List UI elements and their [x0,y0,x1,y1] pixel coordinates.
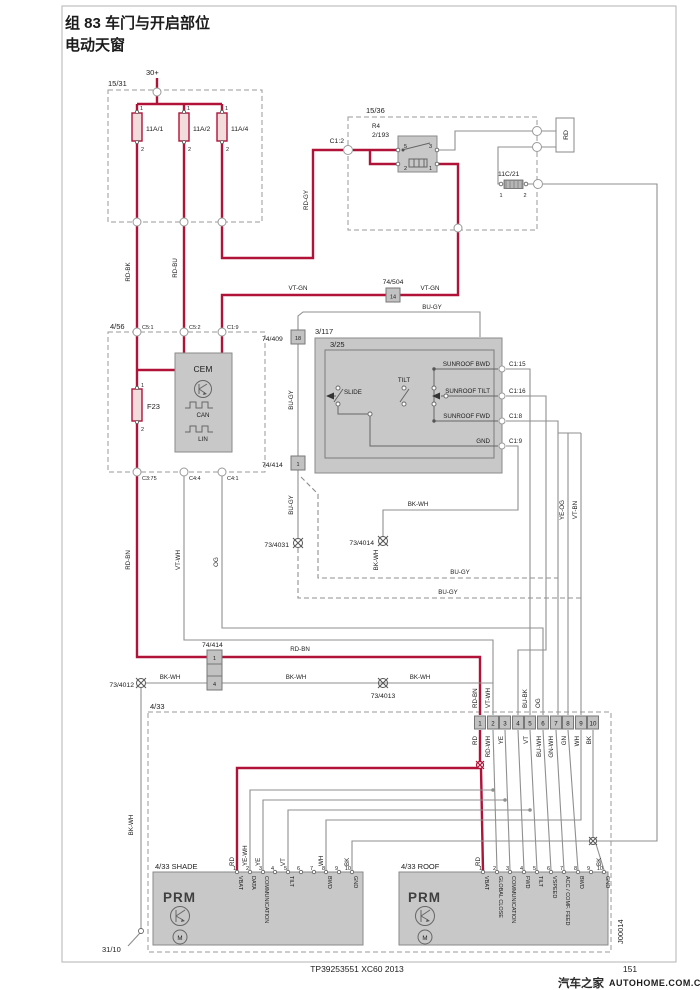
wire-label: YE [498,736,505,744]
wire-label: BU-GY [288,390,295,410]
signal-wires-gray [128,131,657,946]
ground-31-10-label: 31/10 [102,945,121,954]
wire-label: OG [535,698,542,708]
relay-2-193 [396,136,439,172]
wire-label: BU-GY [438,589,458,596]
box-15-31-label: 15/31 [108,79,127,88]
wiring-diagram-page: 组 83 车门与开启部位 电动天窗 30+ 15/31 11A/1 11A/2 … [0,0,700,990]
box-3-117-label: 3/117 [315,327,333,336]
pin-num: 2 [141,147,144,153]
relay-id: 2/193 [372,132,389,139]
conn-74-504-label: 74/504 [383,279,404,286]
pin-num: 7 [554,721,558,728]
conn-74-414-label: 74/414 [262,462,283,469]
ground-label: 73/4014 [349,540,374,547]
conn-label: C1:16 [509,388,526,395]
wire-label: VT [280,858,287,866]
shade-label: 4/33 SHADE [155,862,198,871]
pin-num: 3 [506,866,509,872]
pin-num: 10 [590,721,597,728]
wire-label: RD [472,735,479,744]
shade-prm: PRM [163,890,196,905]
part-number: TP39253551 XC60 2013 [310,964,404,974]
page-title: 组 83 车门与开启部位 [65,14,210,32]
fuse-label: 11A/4 [231,126,248,133]
page-number: 151 [623,964,637,974]
conn-label: C1:9 [509,438,523,445]
pin-num: 2 [188,147,191,153]
pin-num: 3 [503,721,507,728]
wire-label: BK-WH [410,674,431,681]
pin-num: 8 [574,866,577,872]
wire-label: RD-BU [172,258,179,278]
pin-num: 7 [560,866,563,872]
wire-label: YE-OG [559,500,566,520]
wire-label: VT [523,736,530,744]
sunroof-switch-3-117 [315,338,502,473]
wire-label: VT-GN [421,285,440,292]
conn-74-409-label: 74/409 [262,336,283,343]
conn-c1-2: C1:2 [330,138,345,145]
wire-label: RD-BN [125,550,132,570]
wire-label: RD-WH [485,736,492,757]
ground-label: 73/4013 [371,693,396,700]
pin-num: 8 [322,866,325,872]
pin-func: TILT [288,876,294,888]
wire-label: BK-WH [286,674,307,681]
pin-num: 6 [297,866,300,872]
pin-num: 1 [187,106,190,112]
sw-row-label: GND [476,438,490,445]
roof-label: 4/33 ROOF [401,862,440,871]
slide-label: SLIDE [344,389,362,396]
cem-name: CEM [194,364,213,374]
pin-func: BWD [578,876,584,889]
pin-func: FWD [524,876,530,889]
wire-label: BK-WH [160,674,181,681]
conn-label: C1:15 [509,361,526,368]
pin-num: 10 [597,866,603,872]
box-4-56-label: 4/56 [110,322,125,331]
wire-label: BK [586,735,593,744]
bus-can-label: CAN [196,412,209,419]
pin-num: 1 [225,106,228,112]
pin-num: 6 [547,866,550,872]
pin-num: 1 [499,193,502,199]
pin-num: 1 [213,656,216,662]
watermark-cn: 汽车之家 [558,976,604,990]
pin-num: 4 [271,866,274,872]
pin-num: 6 [541,721,545,728]
wire-label: BU-GY [450,569,470,576]
conn-label: C1:9 [227,325,239,331]
wire-label: VT-BN [572,501,579,519]
roof-prm: PRM [408,890,441,905]
fuse-label: 11A/2 [193,126,210,133]
wire-label: BU-GY [288,495,295,515]
wire-label: YE-WH [242,845,249,866]
unit-3-25-label: 3/25 [330,340,345,349]
pin-func: TILT [537,876,543,888]
wire-label: YE [255,858,262,866]
wire-label: BU-BK [522,688,529,708]
pin-func: GND [352,876,358,888]
conn-label: C1:8 [509,413,523,420]
relay-name: R4 [372,123,380,130]
pin-num: 18 [295,336,301,342]
pin-num: 3 [259,866,262,872]
pin-num: 9 [587,866,590,872]
motor-icon: M [177,935,182,942]
drawing-code: J00014 [616,919,625,944]
tilt-label: TILT [398,377,410,384]
pin-num: 4 [213,682,216,688]
wire-label: RD-BN [290,646,310,653]
pin-num: 9 [335,866,338,872]
pin-func: VBAT [237,876,243,891]
dashed-wires [298,477,581,598]
pin-num: 7 [310,866,313,872]
wire-label: BU-GY [422,304,442,311]
splice-rd [476,761,484,769]
sw-row-label: SUNROOF FWD [443,413,490,420]
pin-num: 8 [566,721,570,728]
pin-num: 1 [478,721,482,728]
conn-label: C4:4 [189,476,201,482]
pin-num: 2 [226,147,229,153]
pin-num: 2 [404,166,407,172]
wire-label: BK-WH [408,501,429,508]
pin-func: ACC / COMF. FEED [564,876,570,926]
sunroof-wiring-diagram: 组 83 车门与开启部位 电动天窗 30+ 15/31 11A/1 11A/2 … [0,0,700,990]
wire-label: RD-BK [125,262,132,282]
pin-num: 14 [390,295,396,301]
motor-icon: M [422,935,427,942]
pin-num: 1 [140,106,143,112]
conn-label: C3:75 [142,476,157,482]
pin-num: 10 [345,866,351,872]
conn-74-414-label: 74/414 [202,642,223,649]
pin-func: COMMUNICATION [263,876,269,923]
wire-label: BK-WH [128,815,135,836]
wire-label: RD [475,857,482,866]
fuse-11c21-label: 11C/21 [498,171,520,178]
pin-num: 1 [479,866,482,872]
pin-func: GND [604,876,610,888]
pin-func: COMMUNICATION [510,876,516,923]
wire-label: RD-BN [472,688,479,708]
wire-label: BK-WH [373,550,380,571]
ground-label: 73/4031 [264,542,289,549]
wire-label: VT-WH [175,550,182,570]
conn-label: C4:1 [227,476,239,482]
box-4-33-label: 4/33 [150,702,165,711]
sw-row-label: SUNROOF TILT [445,388,490,395]
wire-label: BK [596,857,603,866]
wire-label: OG [213,557,220,567]
wire-label: VT-WH [485,688,492,708]
conn-label: C5:1 [142,325,154,331]
pin-func: DATA [250,876,256,890]
power-wires-red [137,78,483,871]
pin-func: BWD [326,876,332,889]
bus-lin-label: LIN [198,436,208,443]
wire-label: RD-GY [303,190,310,210]
wire-tag-rd: RD [563,130,570,140]
pin-func: GLOBAL CLOSE [497,876,503,918]
pin-num: 2 [491,721,495,728]
fuse-label: 11A/1 [146,126,163,133]
wire-label: GN-WH [548,736,555,758]
wire-label: BK [344,857,351,866]
conn-label: C5:2 [189,325,201,331]
pin-num: 1 [233,866,236,872]
wire-label: VT-GN [289,285,308,292]
wire-label: GN [561,736,568,745]
pin-func: VBAT [483,876,489,891]
sw-row-label: SUNROOF BWD [443,361,491,368]
ground-label: 73/4012 [109,682,134,689]
pin-num: 4 [520,866,523,872]
labels: 组 83 车门与开启部位 电动天窗 30+ 15/31 11A/1 11A/2 … [65,14,700,990]
supply-label: 30+ [146,68,159,77]
page-subtitle: 电动天窗 [65,36,125,54]
pin-num: 5 [284,866,287,872]
pin-num: 5 [404,144,407,150]
pin-num: 3 [429,144,432,150]
pin-num: 1 [429,166,432,172]
wire-label: BU-WH [536,736,543,757]
watermark-en: AUTOHOME.COM.CN [609,978,700,988]
pin-num: 2 [141,427,144,433]
splice-bk [589,837,597,845]
pin-num: 9 [579,721,583,728]
box-15-36-label: 15/36 [366,106,385,115]
pin-num: 4 [516,721,520,728]
pin-num: 1 [296,462,299,468]
wire-label: RD [229,857,236,866]
pin-num: 5 [528,721,532,728]
fuse-f23-label: F23 [147,402,160,411]
pin-num: 2 [523,193,526,199]
wire-label: WH [574,736,581,746]
pin-num: 1 [141,383,144,389]
wire-label: WH [318,856,325,866]
pin-num: 5 [533,866,536,872]
pin-num: 2 [246,866,249,872]
pin-num: 2 [493,866,496,872]
pin-func: VSPEED [551,876,557,898]
